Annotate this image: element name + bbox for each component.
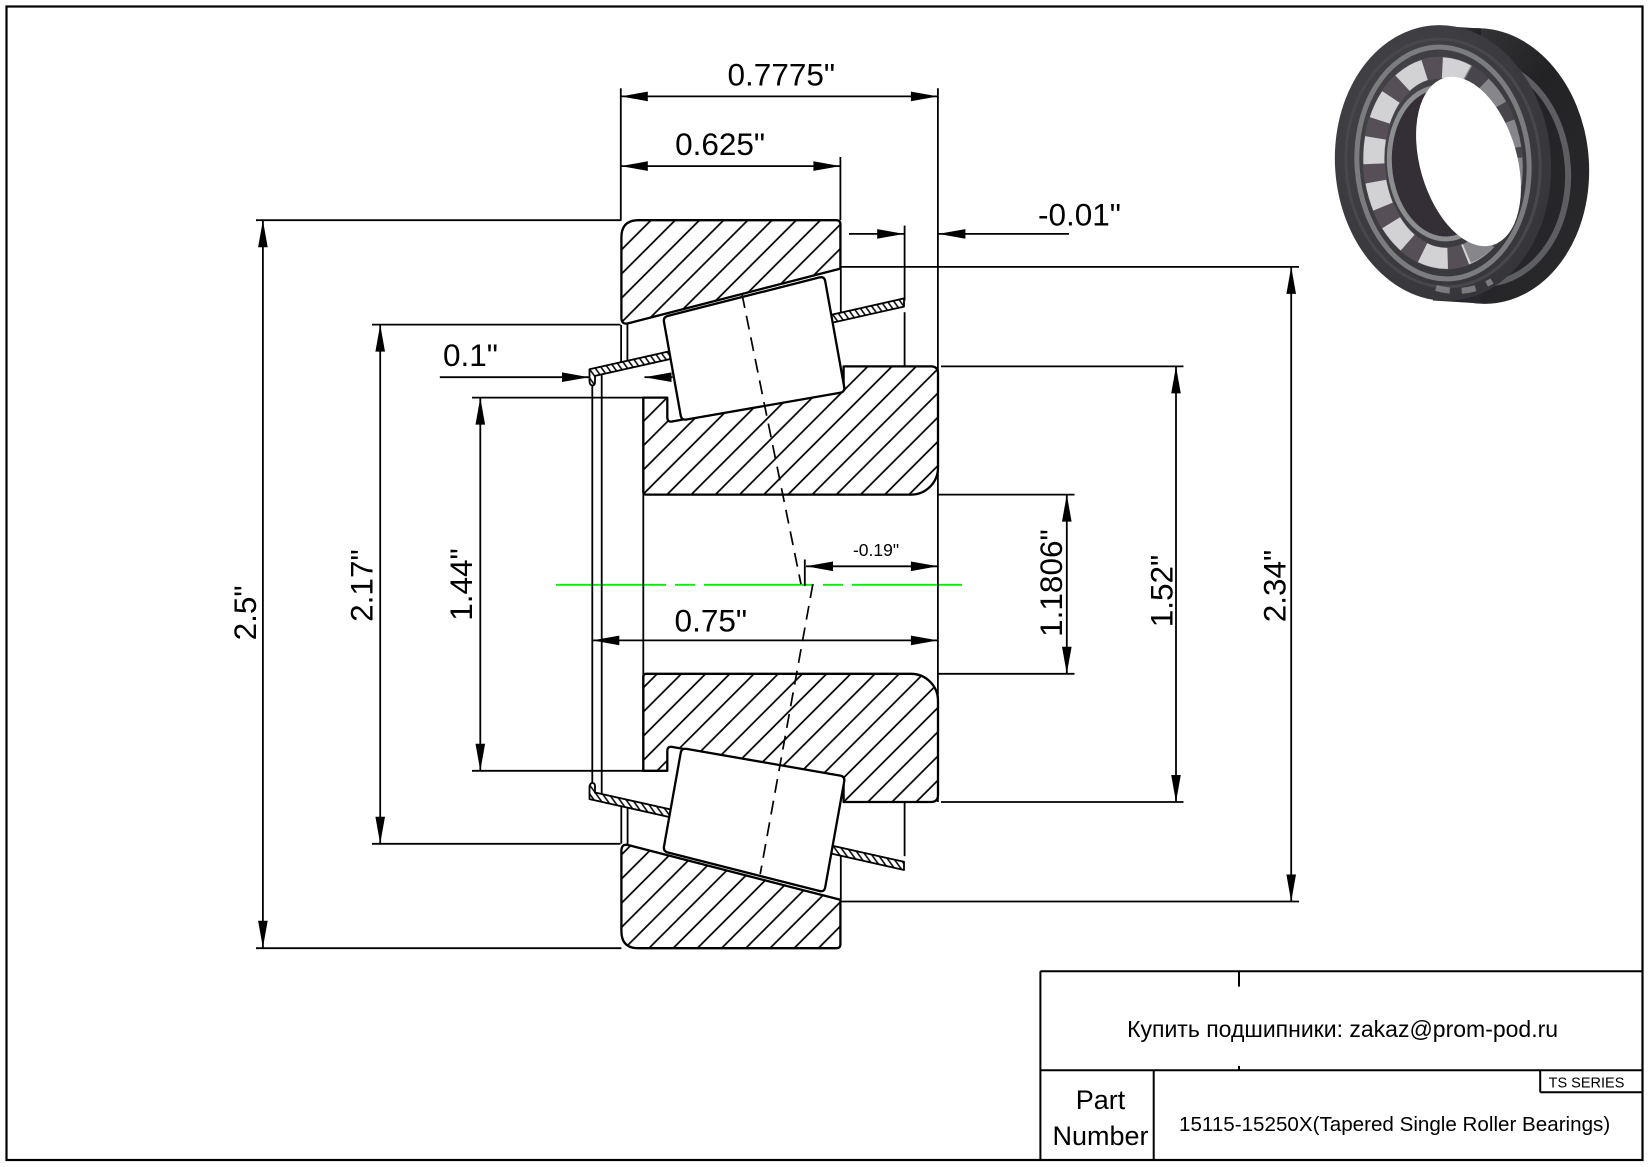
svg-text:0.75": 0.75" <box>675 603 748 639</box>
svg-text:-0.01": -0.01" <box>1038 197 1121 233</box>
svg-text:1.44": 1.44" <box>443 548 479 621</box>
svg-text:0.7775": 0.7775" <box>728 57 836 93</box>
svg-text:2.17": 2.17" <box>343 549 379 622</box>
svg-text:0.625": 0.625" <box>675 126 765 162</box>
svg-text:-0.19": -0.19" <box>853 540 899 560</box>
svg-text:TS SERIES: TS SERIES <box>1549 1076 1625 1092</box>
svg-text:1.1806": 1.1806" <box>1033 529 1069 637</box>
svg-text:1.52": 1.52" <box>1144 555 1180 628</box>
svg-text:2.5": 2.5" <box>227 585 263 640</box>
svg-text:0.1": 0.1" <box>443 337 498 373</box>
svg-text:2.34": 2.34" <box>1257 550 1293 623</box>
svg-text:Купить подшипники: zakaz@prom-: Купить подшипники: zakaz@prom-pod.ru <box>1127 1016 1558 1042</box>
svg-text:Part: Part <box>1076 1085 1126 1115</box>
svg-text:15115-15250X(Tapered Single Ro: 15115-15250X(Tapered Single Roller Beari… <box>1179 1113 1610 1136</box>
svg-text:Number: Number <box>1052 1121 1148 1151</box>
